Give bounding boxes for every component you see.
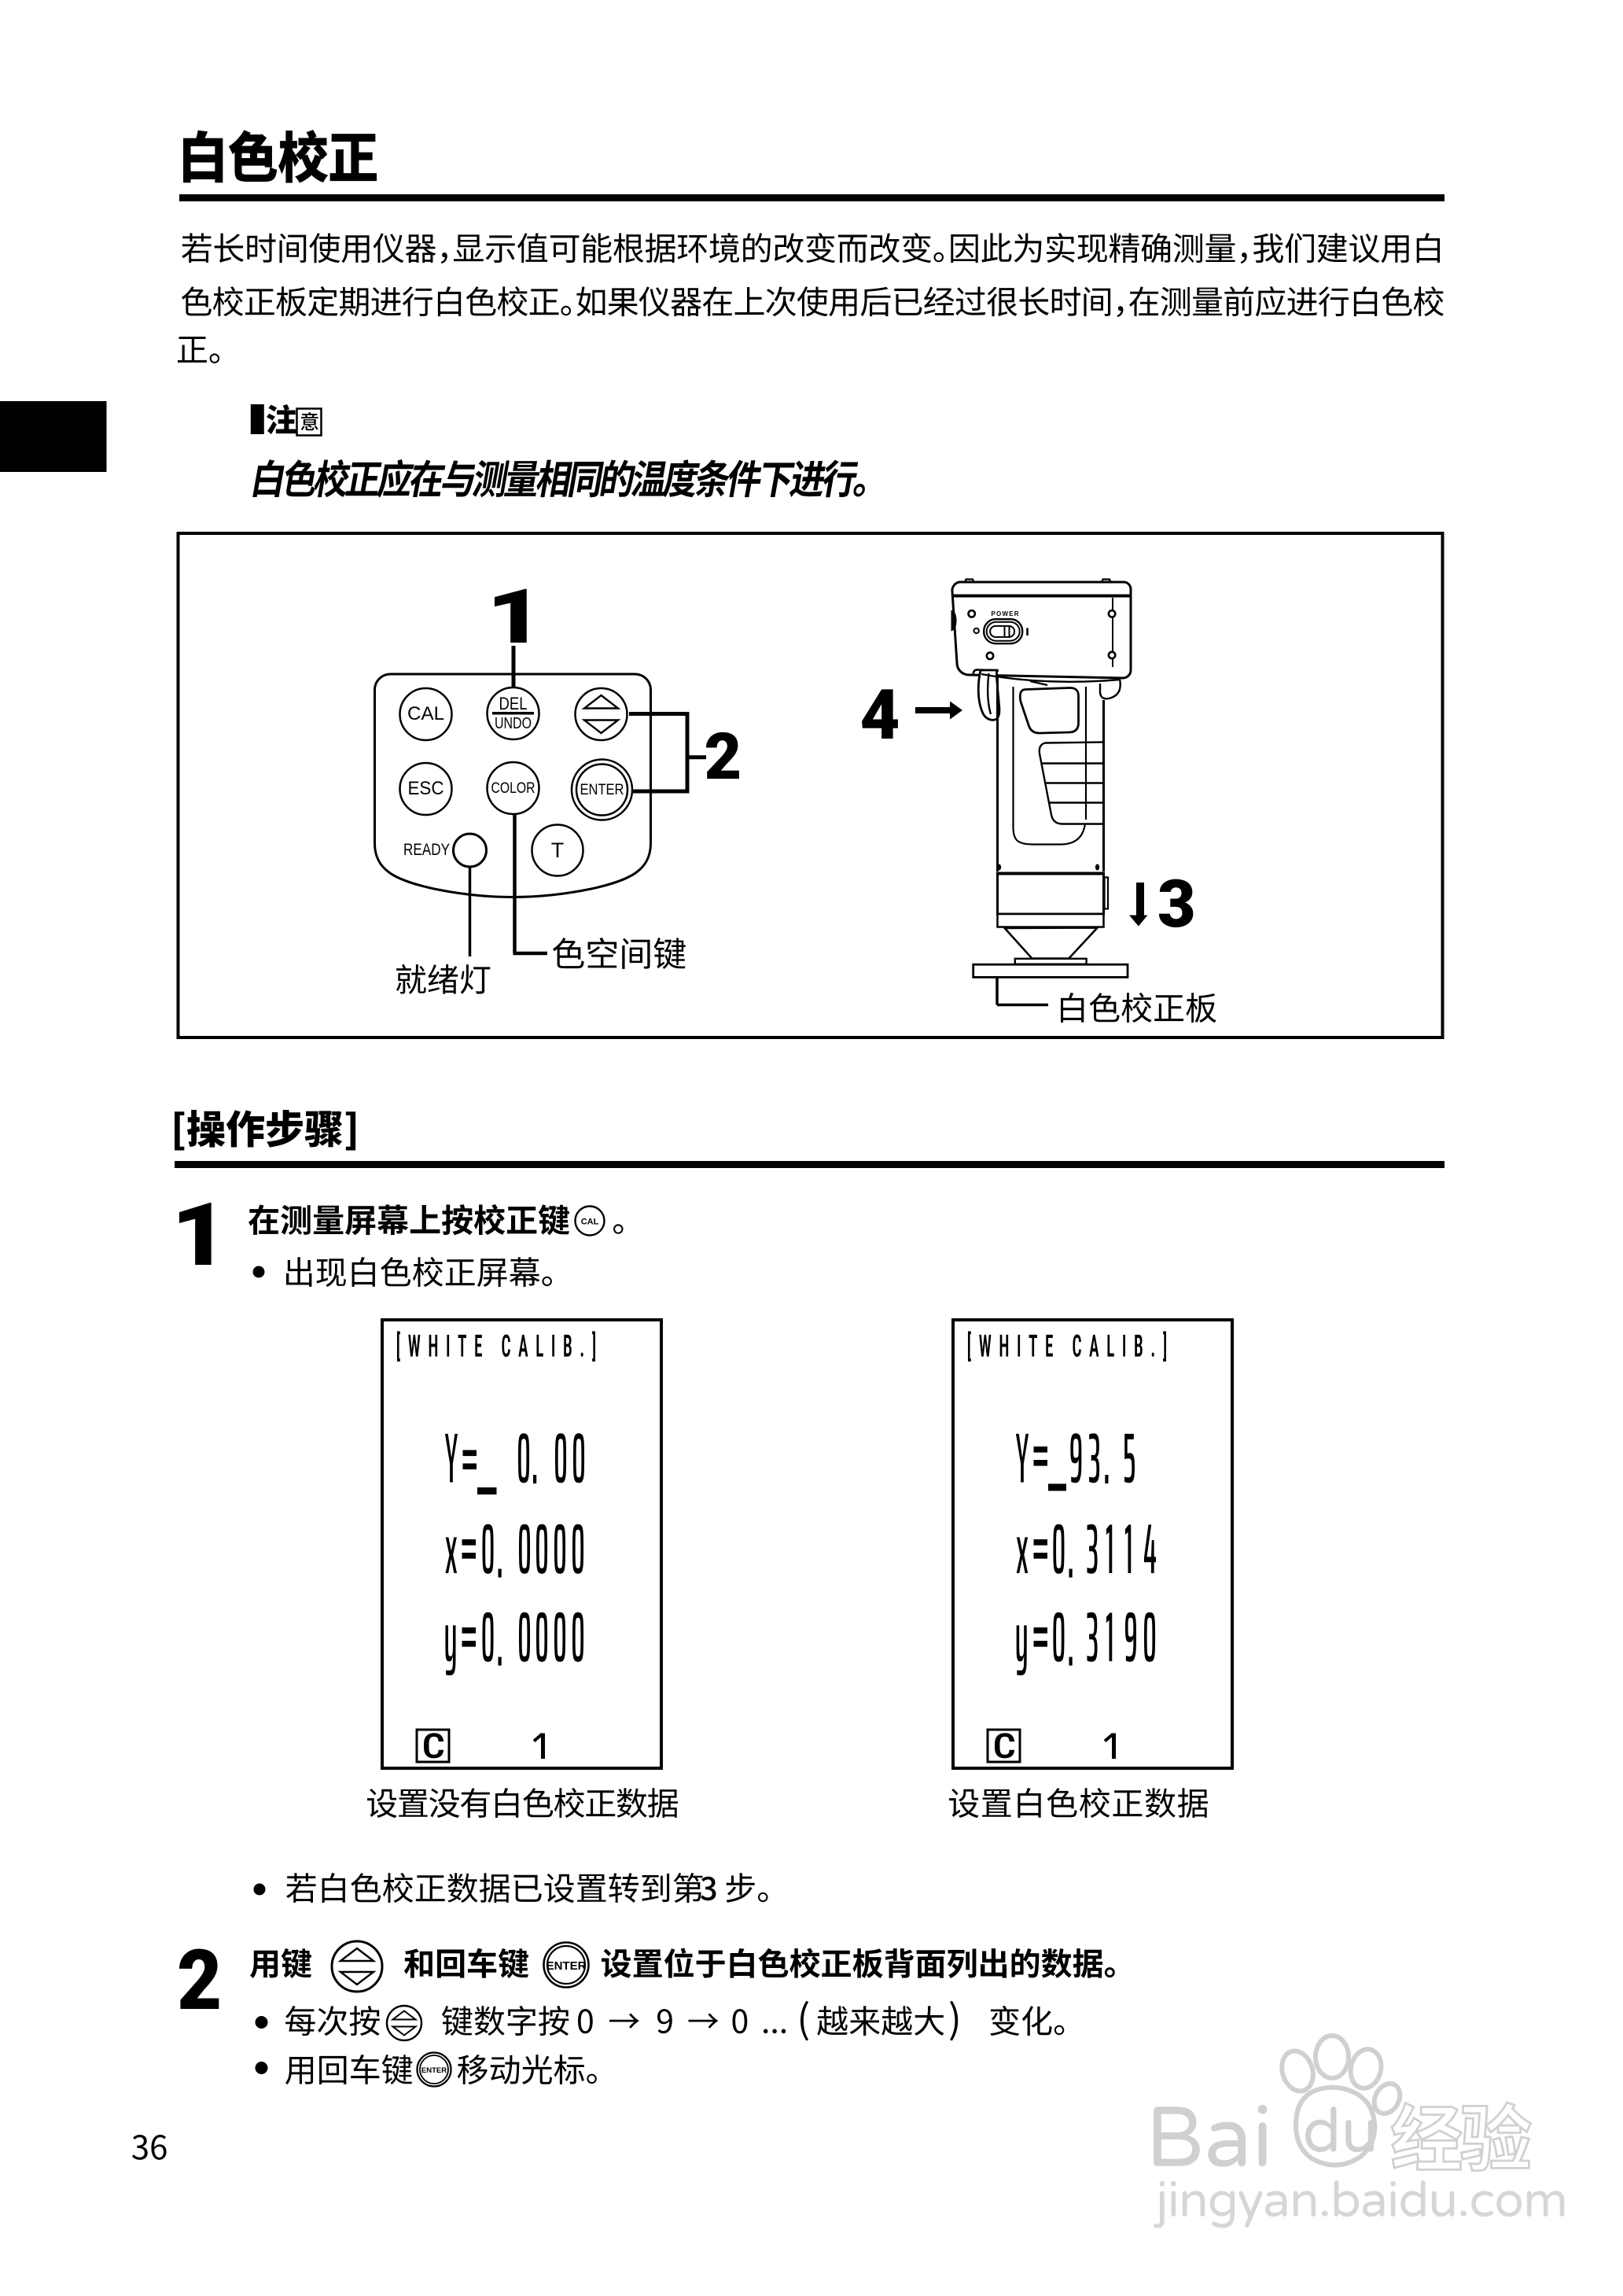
svg-text:COLOR: COLOR bbox=[491, 780, 535, 797]
svg-text:CAL: CAL bbox=[407, 703, 444, 724]
svg-text:UNDO: UNDO bbox=[495, 715, 532, 732]
svg-text:ENTER: ENTER bbox=[421, 2066, 447, 2075]
svg-text:ENTER: ENTER bbox=[547, 1959, 587, 1973]
svg-text:T: T bbox=[551, 838, 565, 862]
svg-text:READY: READY bbox=[403, 841, 450, 859]
svg-text:DEL: DEL bbox=[499, 694, 528, 713]
svg-text:ESC: ESC bbox=[408, 778, 444, 799]
svg-text:CAL: CAL bbox=[581, 1218, 599, 1227]
svg-text:ENTER: ENTER bbox=[580, 782, 624, 798]
svg-text:POWER: POWER bbox=[992, 610, 1020, 617]
